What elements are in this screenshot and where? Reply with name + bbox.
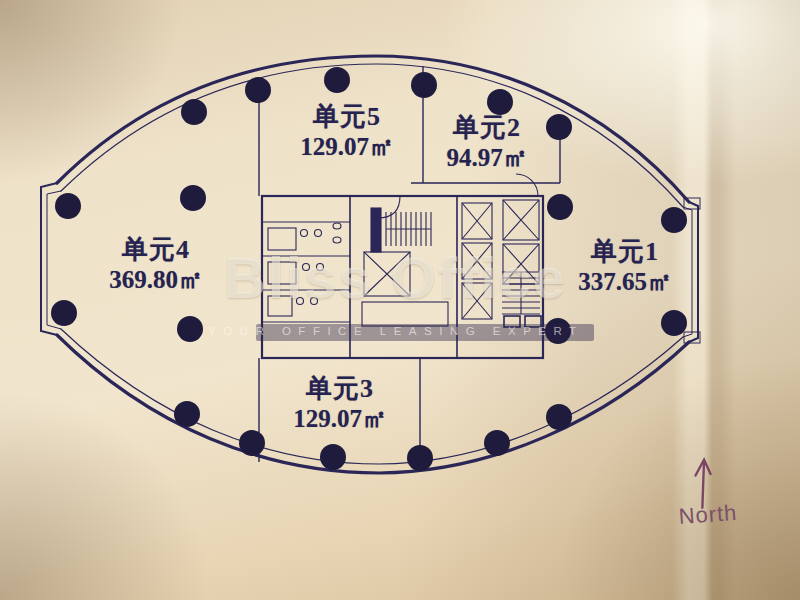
unit-label-unit2: 单元2 94.97㎡: [407, 113, 567, 173]
column-dot: [174, 401, 200, 427]
column-dot: [181, 99, 207, 125]
column-dot: [661, 207, 687, 233]
unit-name: 单元5: [267, 102, 427, 132]
watermark-brand: Bliss Office: [224, 244, 584, 311]
unit-name: 单元3: [260, 374, 420, 404]
floor-plan-photo: 单元5 129.07㎡ 单元2 94.97㎡ 单元4 369.80㎡ 单元1 3…: [0, 0, 800, 600]
column-dot: [487, 89, 513, 115]
column-dot: [484, 430, 510, 456]
unit-label-unit4: 单元4 369.80㎡: [76, 235, 236, 295]
column-dot: [320, 444, 346, 470]
column-dot: [547, 194, 573, 220]
column-dot: [546, 404, 572, 430]
column-dot: [661, 310, 687, 336]
unit-area: 369.80㎡: [76, 265, 236, 295]
north-label: North: [667, 499, 749, 531]
column-dot: [177, 316, 203, 342]
watermark-tagline: YOUR OFFICE LEASING EXPERT: [208, 325, 598, 337]
column-dot: [407, 445, 433, 471]
door-swing-arc: [516, 174, 538, 196]
stairs-top: [386, 212, 431, 246]
column-dot: [55, 193, 81, 219]
unit-area: 129.07㎡: [267, 132, 427, 162]
unit-name: 单元2: [407, 113, 567, 143]
column-dot: [51, 300, 77, 326]
unit-name: 单元4: [76, 235, 236, 265]
column-dot: [411, 72, 437, 98]
unit-label-unit3: 单元3 129.07㎡: [260, 374, 420, 434]
unit-label-unit5: 单元5 129.07㎡: [267, 102, 427, 162]
column-dot: [324, 67, 350, 93]
column-dot: [180, 185, 206, 211]
unit-area: 129.07㎡: [260, 404, 420, 434]
unit-area: 94.97㎡: [407, 143, 567, 173]
column-dot: [245, 77, 271, 103]
